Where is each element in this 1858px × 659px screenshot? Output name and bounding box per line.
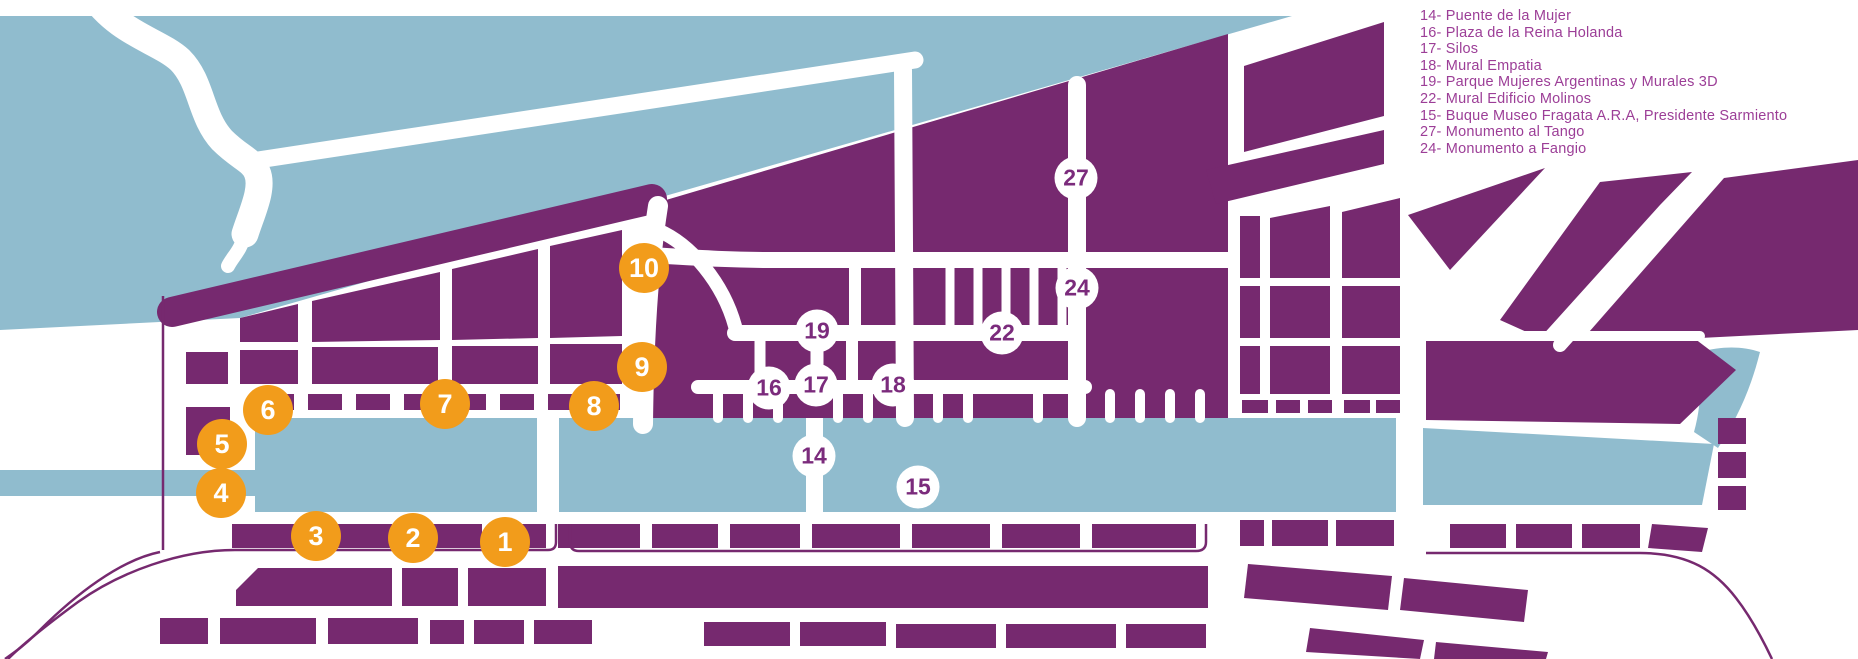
map-marker-10[interactable]: 10 (619, 243, 669, 293)
legend-item-22: 22- Mural Edificio Molinos (1420, 91, 1787, 108)
legend-item-15: 15- Buque Museo Fragata A.R.A, President… (1420, 108, 1787, 125)
map-marker-17[interactable]: 17 (795, 364, 838, 407)
legend-item-17: 17- Silos (1420, 41, 1787, 58)
map-marker-9[interactable]: 9 (617, 342, 667, 392)
map-marker-4[interactable]: 4 (196, 468, 246, 518)
legend: 14- Puente de la Mujer16- Plaza de la Re… (1420, 8, 1787, 157)
map-marker-24[interactable]: 24 (1056, 267, 1099, 310)
map-marker-14[interactable]: 14 (793, 435, 836, 478)
legend-item-19: 19- Parque Mujeres Argentinas y Murales … (1420, 74, 1787, 91)
map-marker-19[interactable]: 19 (796, 310, 839, 353)
legend-item-16: 16- Plaza de la Reina Holanda (1420, 25, 1787, 42)
map-marker-2[interactable]: 2 (388, 513, 438, 563)
map-marker-3[interactable]: 3 (291, 511, 341, 561)
map-marker-27[interactable]: 27 (1055, 157, 1098, 200)
map-marker-18[interactable]: 18 (872, 364, 915, 407)
map-marker-7[interactable]: 7 (420, 379, 470, 429)
map-marker-22[interactable]: 22 (981, 312, 1024, 355)
legend-item-24: 24- Monumento a Fangio (1420, 141, 1787, 158)
map-marker-5[interactable]: 5 (197, 419, 247, 469)
legend-item-18: 18- Mural Empatia (1420, 58, 1787, 75)
map-marker-16[interactable]: 16 (748, 367, 791, 410)
map-marker-6[interactable]: 6 (243, 385, 293, 435)
legend-item-27: 27- Monumento al Tango (1420, 124, 1787, 141)
puerto-madero-map: 12345678910141516171819222427 14- Puente… (0, 0, 1858, 659)
map-marker-8[interactable]: 8 (569, 381, 619, 431)
legend-item-14: 14- Puente de la Mujer (1420, 8, 1787, 25)
map-marker-1[interactable]: 1 (480, 517, 530, 567)
map-marker-15[interactable]: 15 (897, 466, 940, 509)
